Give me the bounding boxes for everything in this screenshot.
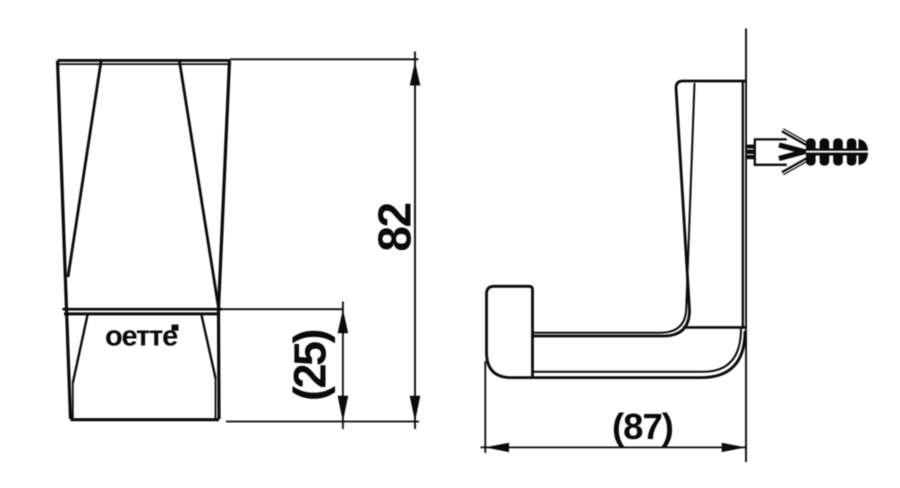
svg-text:оетте: оетте bbox=[105, 321, 178, 353]
svg-text:(25): (25) bbox=[285, 330, 336, 401]
svg-text:82: 82 bbox=[369, 203, 421, 251]
svg-text:(87): (87) bbox=[612, 406, 673, 447]
